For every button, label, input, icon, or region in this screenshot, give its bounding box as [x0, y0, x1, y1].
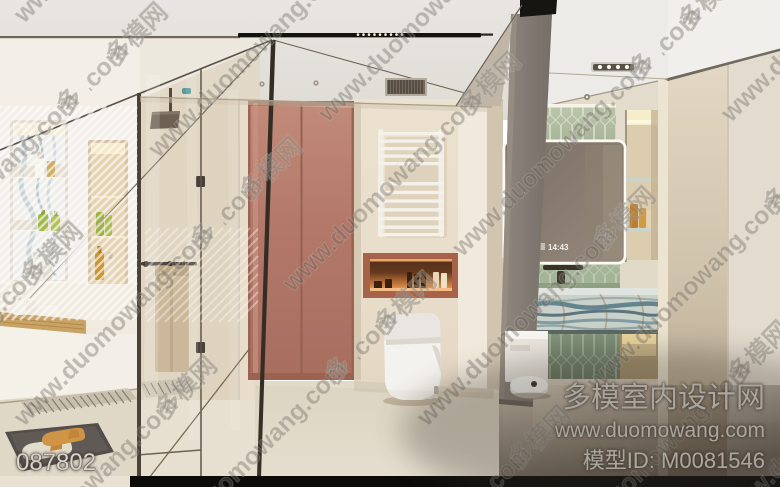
svg-text:087802: 087802	[16, 449, 96, 476]
svg-text:www.duomowang.com: www.duomowang.com	[554, 419, 765, 442]
svg-text:多模室内设计网: 多模室内设计网	[562, 381, 765, 414]
svg-text:模型ID: M0081546: 模型ID: M0081546	[583, 448, 765, 473]
